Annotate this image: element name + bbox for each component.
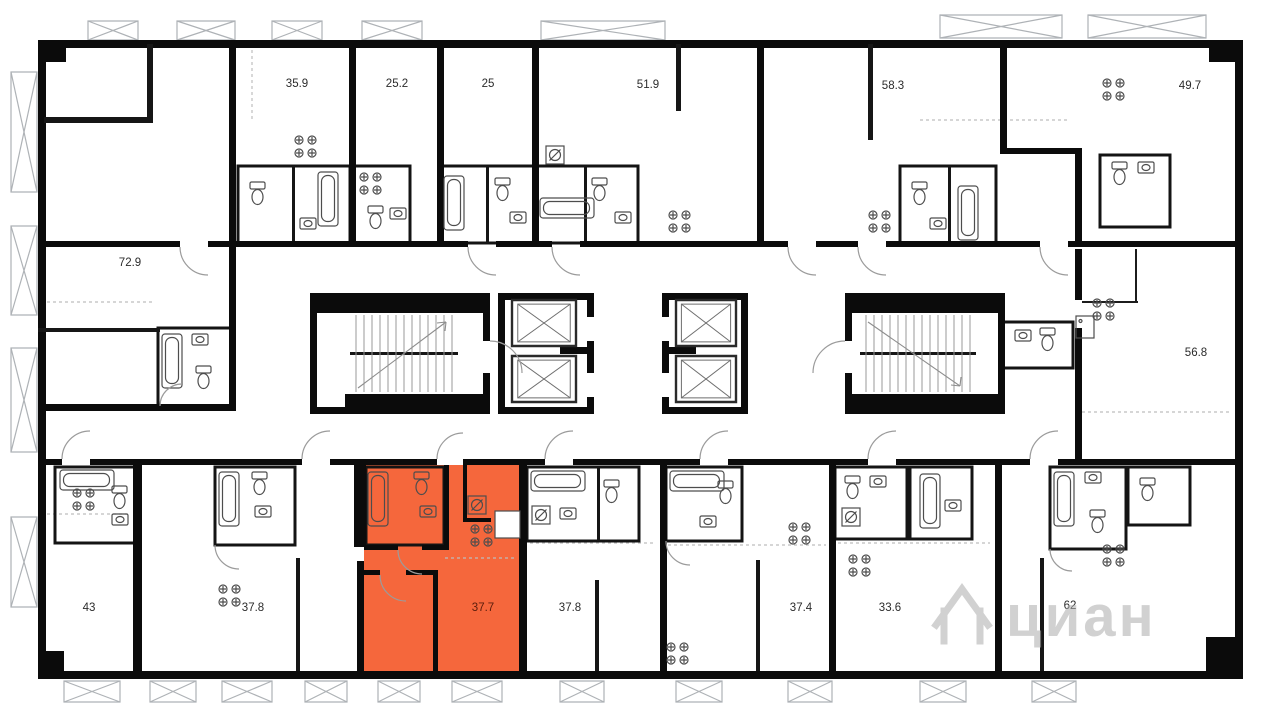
unit-hotspot-56-8[interactable] — [1086, 252, 1234, 457]
unit-hotspot-51-9[interactable] — [539, 48, 754, 163]
elevator-shaft-icon — [512, 356, 576, 402]
floor-plan: 72.9 35.9 25.2 25 51.9 58.3 49.7 56.8 43… — [0, 0, 1280, 711]
unit-hotspot-72-9[interactable] — [46, 130, 226, 400]
unit-hotspot-35-9[interactable] — [236, 48, 346, 163]
unit-hotspot-49-7[interactable] — [1086, 48, 1236, 148]
unit-area-37-7-selected: 37.7 — [472, 602, 494, 614]
unit-hotspot-25-2[interactable] — [356, 48, 434, 163]
unit-hotspot-43[interactable] — [46, 550, 131, 668]
elevator-shaft-icon — [512, 300, 576, 346]
elevator-shaft-icon — [676, 300, 736, 346]
kitchen-counter — [495, 511, 520, 538]
unit-hotspot-62[interactable] — [1048, 575, 1233, 668]
unit-hotspot-33-6[interactable] — [838, 550, 992, 668]
unit-hotspot-58-3[interactable] — [764, 48, 996, 163]
unit-hotspot-37-8-b[interactable] — [530, 550, 657, 668]
unit-hotspot-25[interactable] — [444, 48, 529, 163]
unit-hotspot-37-4[interactable] — [670, 550, 826, 668]
unit-hotspot-37-8-a[interactable] — [145, 550, 293, 668]
elevator-shaft-icon — [676, 356, 736, 402]
